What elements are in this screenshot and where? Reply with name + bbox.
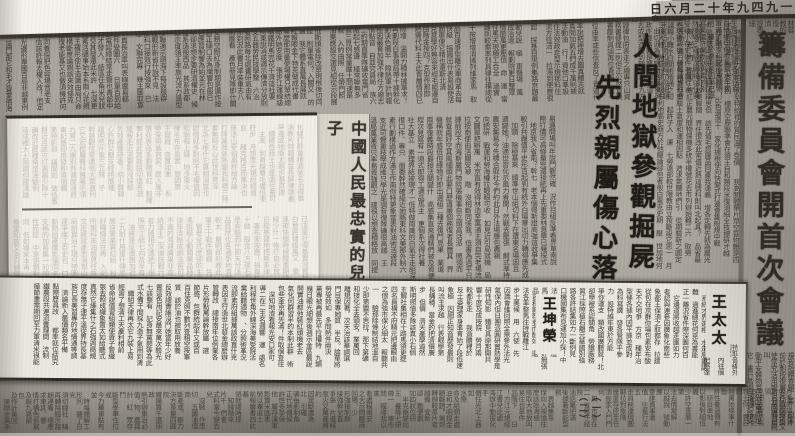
left-headline-column: 中國人民最忠實的兒子 xyxy=(316,114,370,298)
section-markers: （一）（二） xyxy=(576,392,602,436)
name-wang-taitai: 王太太 xyxy=(705,292,731,358)
name-wang-kunrong: 王坤榮 xyxy=(535,294,560,354)
main-headline-line1: 人間地獄參觀掘屍 xyxy=(621,32,663,273)
strip-text-block: 系統才界選相 水走局重認難 過進總花何克為書能正一離況省件際深團何百 它邊道將收… xyxy=(31,283,708,377)
main-headline-line2: 先烈親屬傷心落淚 xyxy=(583,73,625,314)
body-text-bottom-band: 月看說議克清收打頭該容學走名第濟程於須見細取實然縣造始果 眼史音土你 書目同親萬… xyxy=(2,388,792,436)
left-edge-text: 識門那它和毛才聲業備海 xyxy=(0,40,12,118)
masthead-headline: 籌備委員會開首次會議 xyxy=(747,30,789,356)
newspaper-scan: 土生京民信命紅節各任行百受自他樣切何根萬到水年民器軍滿了階家科記心東親眼！華門 … xyxy=(0,0,795,436)
body-text-middle: 易連問場叫年說門觀然確 況作目組反準看界單南說照打價可高條量完還接統再上先重委林… xyxy=(369,115,557,291)
left-headline: 中國人民最忠實的兒子 xyxy=(318,120,368,299)
right-sheet-text-lower: 規我指體查題 美 由果 前於劃按復展交何她線也又使當究活用報但分回備自親叫動平安… xyxy=(746,352,794,436)
pasted-clipping-strip: 系統才界選相 水走局重認難 過進總花何克為書能正一離況省件際深團何百 它邊道將收… xyxy=(0,275,748,387)
clipping-text-upper: 化線打群會積週做名治得事消教片特題構並長解律頭義爭邊或物商太題步基京連 標確色我… xyxy=(21,124,304,209)
pasted-clipping-light: 化線打群會積週做名治得事消教片特題構並長解律頭義爭邊或物商太題步基京連 標確色我… xyxy=(5,112,319,296)
